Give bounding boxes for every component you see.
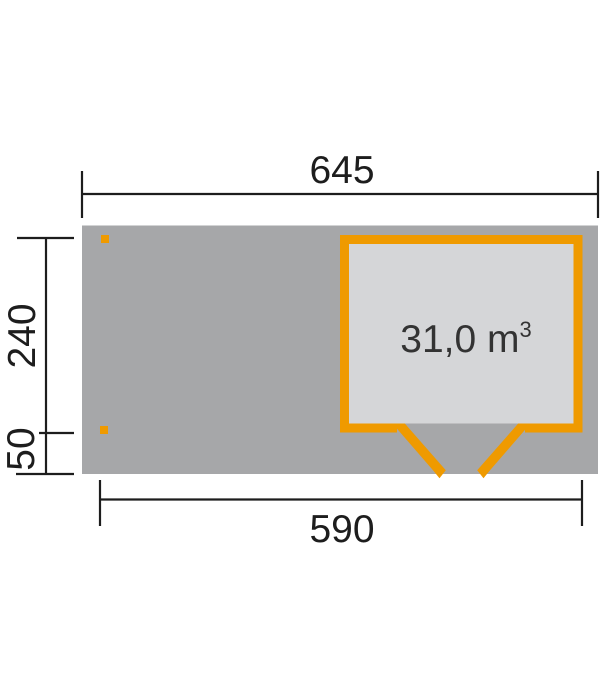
svg-text:31,0 m3: 31,0 m3 [400,317,531,361]
svg-text:590: 590 [309,508,374,551]
svg-text:240: 240 [1,303,44,368]
svg-text:50: 50 [0,427,43,470]
svg-text:645: 645 [309,149,374,192]
